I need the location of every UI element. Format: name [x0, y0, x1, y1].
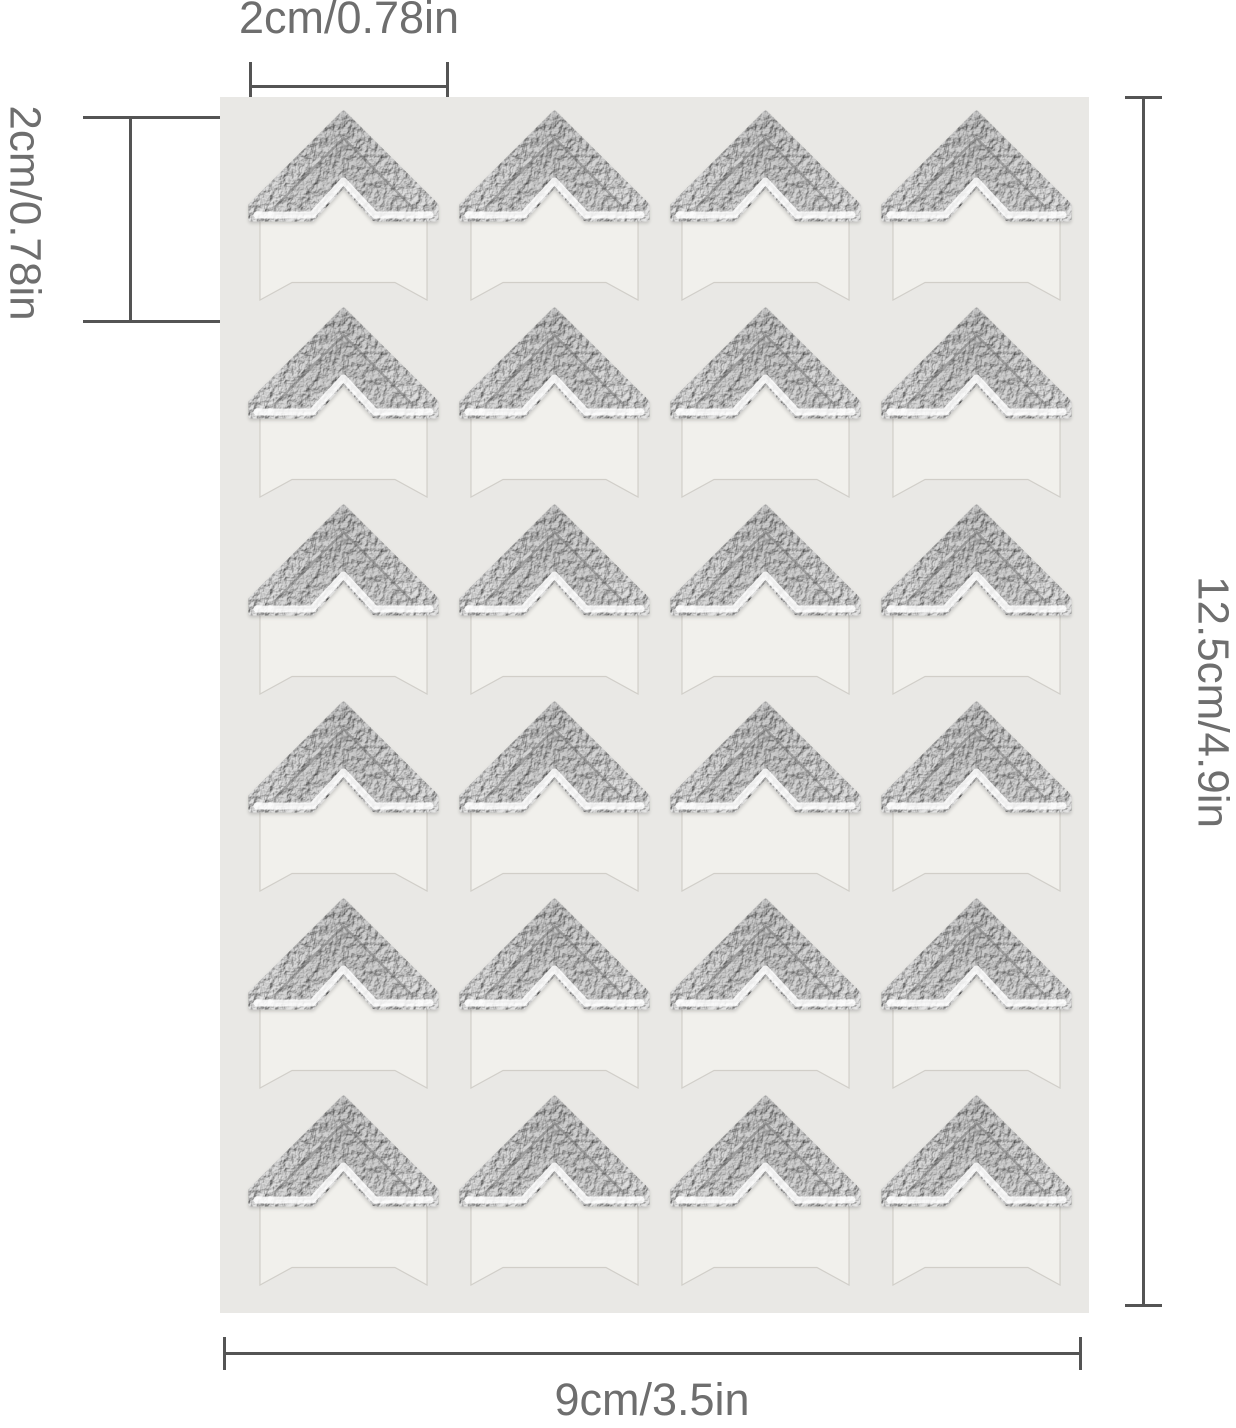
photo-corner-chevron-icon — [457, 895, 652, 1091]
dimension-line — [223, 1352, 1082, 1355]
photo-corner-sticker — [457, 501, 652, 697]
photo-corner-sticker — [457, 107, 652, 303]
photo-corner-chevron-icon — [246, 1092, 441, 1288]
photo-corner-chevron-icon — [668, 304, 863, 500]
dimension-connector — [129, 116, 132, 323]
product-dimension-diagram: 2cm/0.78in 2cm/0.78in 12.5cm/4.9in 9cm/3… — [0, 0, 1236, 1428]
photo-corner-sticker — [457, 895, 652, 1091]
photo-corner-sticker — [668, 698, 863, 894]
photo-corner-sticker — [246, 1092, 441, 1288]
photo-corner-sticker — [246, 107, 441, 303]
photo-corner-sticker — [879, 895, 1074, 1091]
photo-corner-sticker — [246, 698, 441, 894]
photo-corner-sticker — [879, 698, 1074, 894]
dimension-end-cap — [1125, 96, 1162, 99]
dimension-connector — [249, 85, 449, 88]
photo-corner-chevron-icon — [246, 698, 441, 894]
photo-corner-chevron-icon — [879, 1092, 1074, 1288]
photo-corner-sticker — [457, 1092, 652, 1288]
dimension-line — [1142, 96, 1145, 1307]
photo-corner-chevron-icon — [879, 501, 1074, 697]
photo-corner-chevron-icon — [457, 698, 652, 894]
photo-corner-chevron-icon — [246, 501, 441, 697]
photo-corner-sticker — [879, 501, 1074, 697]
photo-corner-chevron-icon — [879, 698, 1074, 894]
dimension-end-cap — [1125, 1304, 1162, 1307]
photo-corner-sticker — [457, 304, 652, 500]
photo-corner-sticker — [668, 107, 863, 303]
photo-corner-chevron-icon — [668, 1092, 863, 1288]
photo-corner-chevron-icon — [668, 107, 863, 303]
photo-corner-chevron-icon — [246, 304, 441, 500]
photo-corner-chevron-icon — [879, 895, 1074, 1091]
photo-corner-sticker — [879, 107, 1074, 303]
dimension-end-cap — [1079, 1337, 1082, 1370]
photo-corner-chevron-icon — [246, 107, 441, 303]
corner-height-label: 2cm/0.78in — [0, 105, 49, 320]
sticker-grid — [220, 97, 1089, 1288]
sheet-height-label: 12.5cm/4.9in — [1187, 576, 1236, 828]
corner-width-label: 2cm/0.78in — [239, 0, 459, 44]
sticker-sheet — [220, 97, 1089, 1313]
photo-corner-sticker — [668, 304, 863, 500]
photo-corner-sticker — [668, 501, 863, 697]
photo-corner-sticker — [668, 895, 863, 1091]
photo-corner-chevron-icon — [668, 895, 863, 1091]
photo-corner-chevron-icon — [879, 304, 1074, 500]
photo-corner-sticker — [246, 501, 441, 697]
photo-corner-sticker — [457, 698, 652, 894]
photo-corner-chevron-icon — [457, 107, 652, 303]
photo-corner-sticker — [246, 895, 441, 1091]
photo-corner-sticker — [879, 1092, 1074, 1288]
photo-corner-sticker — [668, 1092, 863, 1288]
photo-corner-chevron-icon — [668, 501, 863, 697]
photo-corner-chevron-icon — [879, 107, 1074, 303]
photo-corner-sticker — [246, 304, 441, 500]
photo-corner-sticker — [879, 304, 1074, 500]
photo-corner-chevron-icon — [668, 698, 863, 894]
dimension-end-cap — [223, 1337, 226, 1370]
photo-corner-chevron-icon — [457, 501, 652, 697]
photo-corner-chevron-icon — [457, 1092, 652, 1288]
photo-corner-chevron-icon — [246, 895, 441, 1091]
sheet-width-label: 9cm/3.5in — [554, 1374, 749, 1426]
photo-corner-chevron-icon — [457, 304, 652, 500]
